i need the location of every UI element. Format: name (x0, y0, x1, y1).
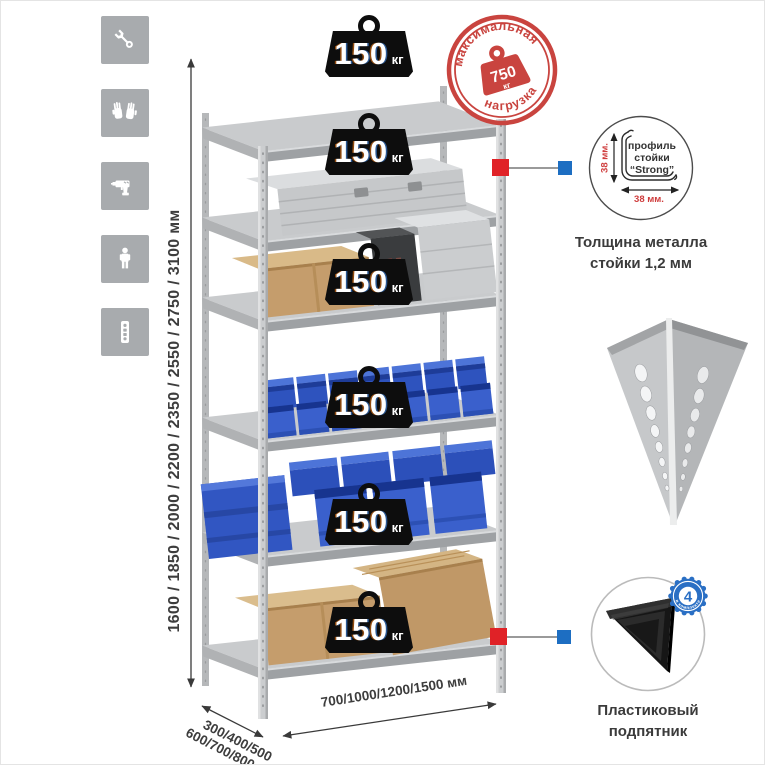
profile-label-1: профиль (628, 140, 676, 152)
corner-profile-image (607, 318, 748, 525)
shelf-load-badge: 150кг (325, 591, 413, 653)
blue-marker (557, 630, 571, 644)
red-marker (490, 628, 507, 645)
product-infographic: 150кг 150кг 150кг 150кг 150кг 150кг макс… (0, 0, 765, 765)
foot-caption-line2: подпятник (565, 721, 731, 742)
blue-marker (558, 161, 572, 175)
shelf-load-badge: 150кг (325, 366, 413, 428)
profile-vertical-dim: 38 мм. (600, 143, 611, 173)
height-dimension-label: 1600 / 1850 / 2000 / 2200 / 2350 / 2550 … (166, 209, 184, 632)
foot-caption: Пластиковый подпятник (565, 700, 731, 742)
foot-connector (490, 628, 571, 645)
shelf-load-badge: 150кг (325, 15, 413, 77)
kit-count-badge: 4 в комплекте (667, 575, 709, 617)
profile-connector (492, 159, 572, 176)
shelf-load-badge: 150кг (325, 243, 413, 305)
profile-label-3: “Strong” (630, 164, 674, 176)
foot-caption-line1: Пластиковый (565, 700, 731, 721)
shelf-load-badge: 150кг (325, 483, 413, 545)
shelf-load-badge: 150кг (325, 113, 413, 175)
kit-count-value: 4 (684, 589, 693, 606)
profile-caption-line1: Толщина металла (558, 232, 724, 253)
load-value: 150 (334, 36, 387, 72)
load-unit: кг (392, 52, 404, 67)
profile-label-2: стойки (634, 152, 669, 164)
profile-caption: Толщина металла стойки 1,2 мм (558, 232, 724, 274)
profile-horizontal-dim: 38 мм. (634, 194, 664, 205)
post-profile-callout: 38 мм. 38 мм. профиль стойки “Strong” (588, 115, 694, 221)
red-marker (492, 159, 509, 176)
profile-caption-line2: стойки 1,2 мм (558, 253, 724, 274)
max-load-stamp: максимальная нагрузка 750 кг (445, 13, 559, 127)
